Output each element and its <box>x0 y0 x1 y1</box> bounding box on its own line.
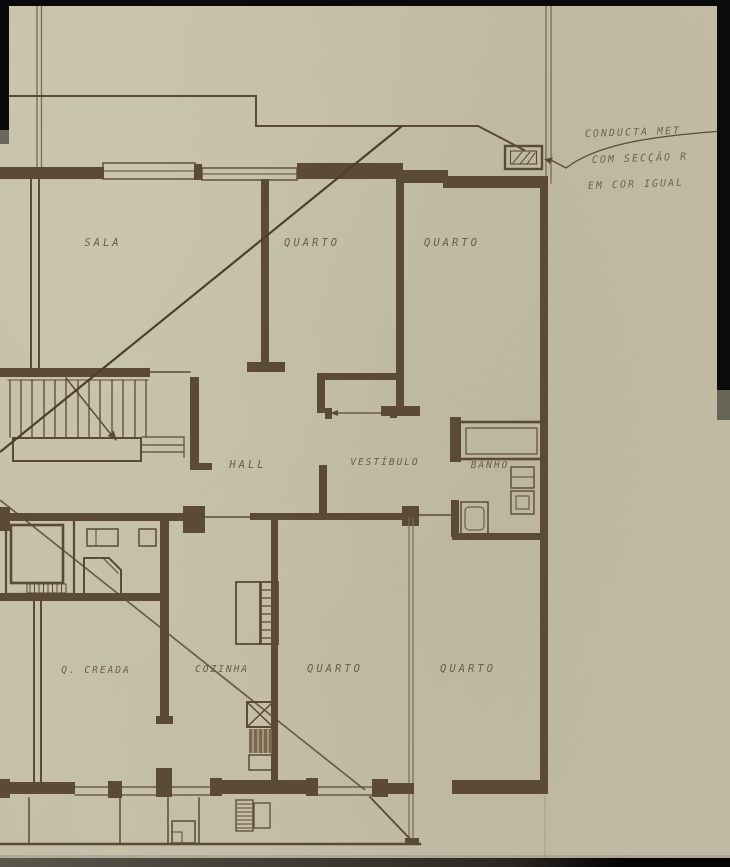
label-quarto-3: QUARTO <box>307 663 363 675</box>
bedroom-divider-2 <box>381 179 420 416</box>
balcony-fixture <box>172 821 195 843</box>
right-exterior-wall <box>540 176 548 794</box>
diagonal-line-lower <box>0 500 365 790</box>
lower-bedroom-divider <box>405 518 419 844</box>
label-hall: HALL <box>228 459 266 471</box>
label-cozinha: COZINHA <box>195 664 249 675</box>
vestibule-wall <box>319 465 327 513</box>
bedroom-divider-1 <box>247 179 285 372</box>
label-vestibulo: VESTÍBULO <box>350 456 419 468</box>
closet-wall <box>317 373 397 419</box>
stairs <box>8 380 184 461</box>
parapet-outline <box>0 96 524 150</box>
label-sala: SALA <box>84 237 121 249</box>
bidet <box>511 491 534 514</box>
sink <box>511 467 534 488</box>
wc-fixtures <box>87 529 156 546</box>
annotation-line-1: CONDUCTA MET <box>585 126 682 140</box>
label-banho: BANHO <box>471 460 510 471</box>
annotation-line-2: COM SECÇÃO R <box>592 150 689 166</box>
balcony-door-swing <box>370 797 412 841</box>
top-window-1 <box>103 163 195 179</box>
balcony-edge <box>0 798 420 844</box>
kitchen-small-box <box>249 755 272 770</box>
floorplan-scan: SALA QUARTO QUARTO HALL VESTÍBULO BANHO … <box>0 0 730 867</box>
top-exterior-wall <box>0 163 548 188</box>
top-window-2 <box>202 168 297 180</box>
lower-top-wall <box>0 506 452 533</box>
kitchen-hatched-box <box>249 729 272 753</box>
label-quarto-1: QUARTO <box>284 237 340 249</box>
maid-room-wall <box>34 601 41 788</box>
label-q-creada: Q. CREADA <box>61 665 130 676</box>
stair-shaft-wall <box>190 377 212 470</box>
bathtub <box>459 422 543 459</box>
balcony-planter <box>236 800 270 831</box>
shower-tray <box>84 558 121 596</box>
floor-plan-svg: SALA QUARTO QUARTO HALL VESTÍBULO BANHO … <box>0 0 730 867</box>
label-quarto-2: QUARTO <box>424 237 480 249</box>
party-wall-left <box>37 0 42 170</box>
annotation-line-3: EM COR IGUAL <box>588 178 685 192</box>
wc-walls <box>0 520 173 724</box>
stair-direction-arrow <box>66 378 117 441</box>
sala-left-wall <box>31 179 39 369</box>
toilet <box>461 502 488 535</box>
label-quarto-4: QUARTO <box>440 663 496 675</box>
kitchen-divider-wall <box>271 515 278 783</box>
